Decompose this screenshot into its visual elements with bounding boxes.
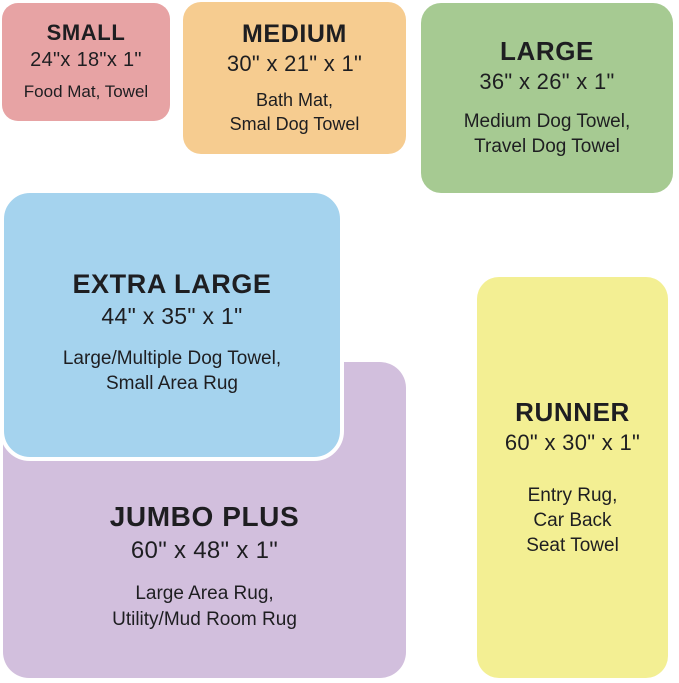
- use-line: Car Back: [526, 508, 619, 533]
- size-title-extra-large: EXTRA LARGE: [72, 268, 271, 300]
- size-title-runner: RUNNER: [515, 397, 630, 428]
- size-card-runner: RUNNER 60" x 30" x 1" Entry Rug, Car Bac…: [477, 277, 668, 678]
- use-line: Large/Multiple Dog Towel,: [63, 346, 281, 371]
- size-chart-infographic: SMALL 24"x 18"x 1" Food Mat, Towel MEDIU…: [0, 0, 679, 683]
- use-line: Small Area Rug: [63, 371, 281, 396]
- size-dimensions-extra-large: 44" x 35" x 1": [101, 300, 242, 332]
- size-uses-extra-large: Large/Multiple Dog Towel, Small Area Rug: [63, 346, 281, 397]
- size-dimensions-large: 36" x 26" x 1": [479, 67, 614, 98]
- size-uses-small: Food Mat, Towel: [24, 81, 148, 104]
- size-dimensions-jumbo-plus: 60" x 48" x 1": [131, 534, 278, 568]
- use-line: Travel Dog Towel: [464, 134, 631, 159]
- size-dimensions-small: 24"x 18"x 1": [30, 46, 142, 74]
- size-title-small: SMALL: [47, 20, 126, 46]
- size-title-medium: MEDIUM: [242, 19, 347, 49]
- size-uses-jumbo-plus: Large Area Rug, Utility/Mud Room Rug: [112, 581, 297, 632]
- size-card-extra-large: EXTRA LARGE 44" x 35" x 1" Large/Multipl…: [0, 189, 344, 461]
- size-uses-large: Medium Dog Towel, Travel Dog Towel: [464, 109, 631, 160]
- size-dimensions-runner: 60" x 30" x 1": [505, 428, 640, 459]
- size-card-small: SMALL 24"x 18"x 1" Food Mat, Towel: [2, 3, 170, 121]
- size-uses-medium: Bath Mat, Smal Dog Towel: [230, 89, 360, 137]
- use-line: Bath Mat,: [230, 89, 360, 113]
- use-line: Large Area Rug,: [112, 581, 297, 606]
- size-card-large: LARGE 36" x 26" x 1" Medium Dog Towel, T…: [421, 3, 673, 193]
- use-line: Seat Towel: [526, 533, 619, 558]
- size-dimensions-medium: 30" x 21" x 1": [227, 49, 362, 80]
- use-line: Entry Rug,: [526, 483, 619, 508]
- size-uses-runner: Entry Rug, Car Back Seat Towel: [526, 483, 619, 559]
- use-line: Food Mat, Towel: [24, 81, 148, 104]
- use-line: Utility/Mud Room Rug: [112, 607, 297, 632]
- size-title-jumbo-plus: JUMBO PLUS: [110, 500, 300, 534]
- size-title-large: LARGE: [500, 36, 594, 67]
- use-line: Smal Dog Towel: [230, 113, 360, 137]
- use-line: Medium Dog Towel,: [464, 109, 631, 134]
- size-card-medium: MEDIUM 30" x 21" x 1" Bath Mat, Smal Dog…: [183, 2, 406, 154]
